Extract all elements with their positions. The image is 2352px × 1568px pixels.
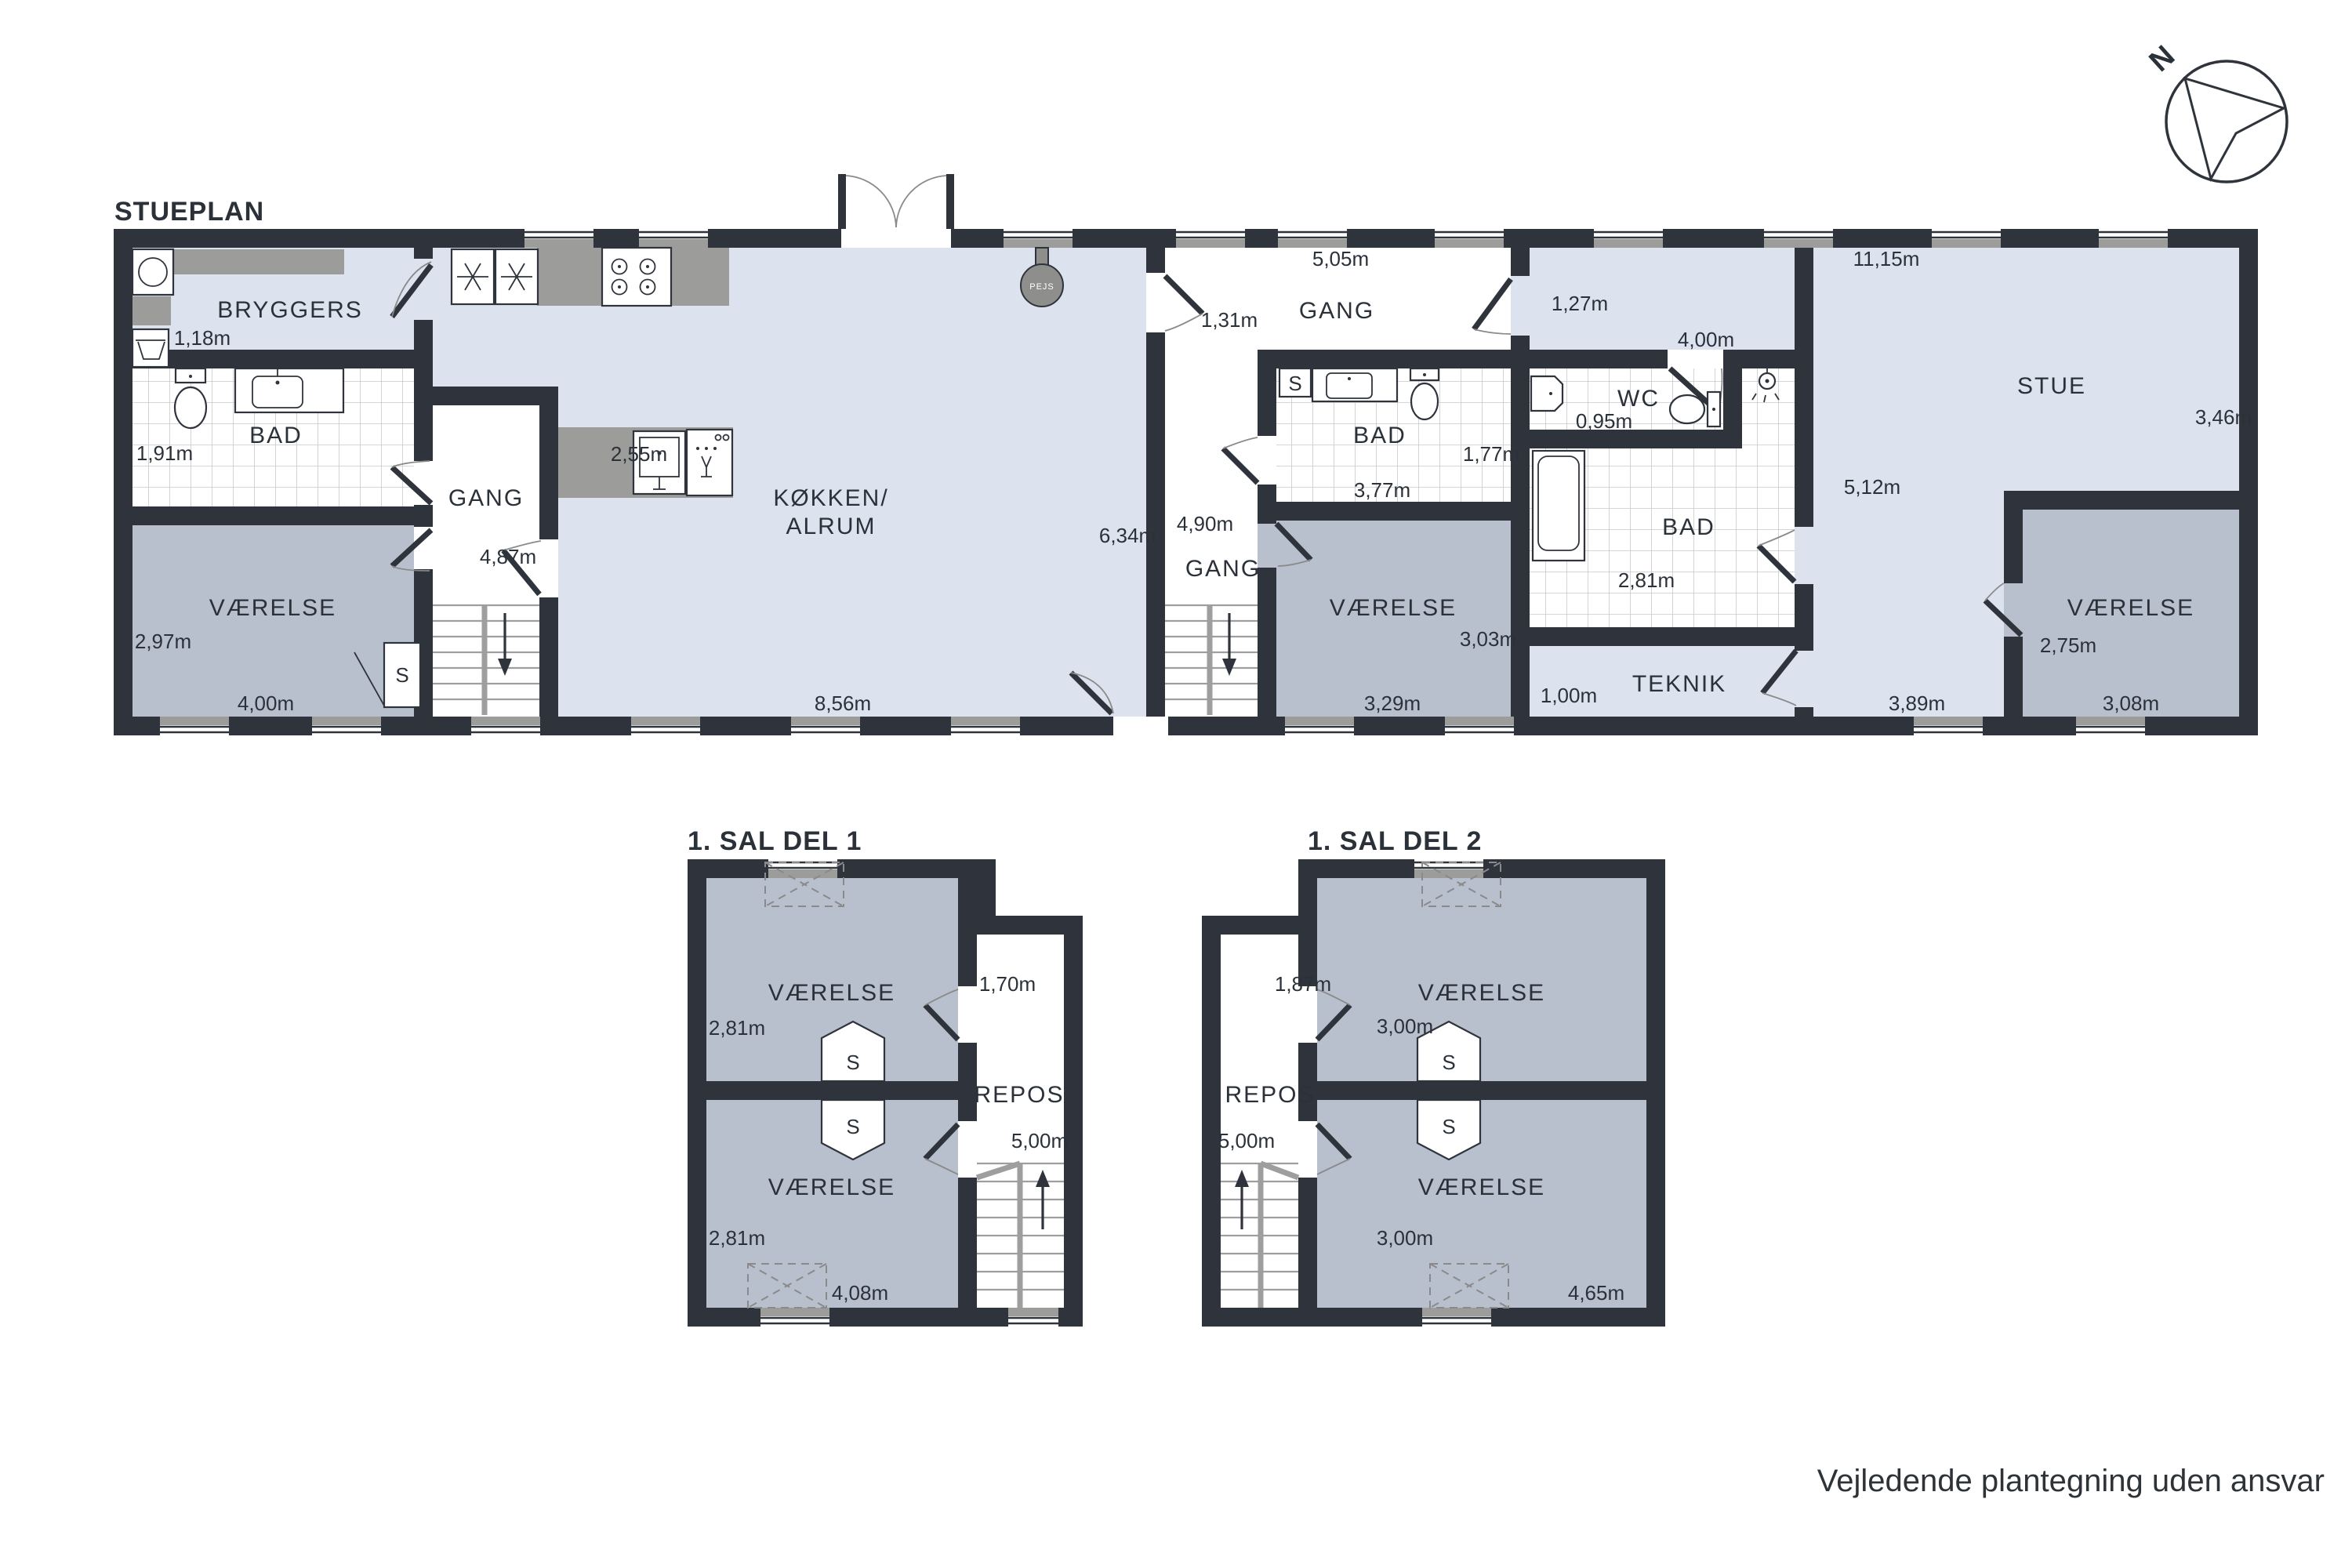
room-label-bad-mid: BAD [1353, 423, 1406, 448]
disclaimer-text: Vejledende plantegning uden ansvar [1817, 1464, 2325, 1498]
closet-label: S [846, 1115, 859, 1138]
dim-stue-bottom: 3,89m [1889, 691, 1945, 715]
dim-wc-w: 4,00m [1678, 328, 1734, 351]
room-vaerelse-left-floor [132, 525, 414, 717]
closet-label: S [846, 1051, 859, 1074]
sal2-vaerelse-bottom-floor [1317, 1100, 1646, 1308]
dim-bryggers: 1,18m [174, 326, 230, 350]
dim-entry-pass: 1,31m [1201, 308, 1258, 332]
sal2-title: 1. SAL DEL 2 [1308, 826, 1482, 856]
bathtub-icon [1533, 451, 1584, 561]
dim-gang-mid: 4,90m [1177, 512, 1233, 535]
dim-room-top-h: 3,00m [1377, 1014, 1433, 1038]
wall-vaerelse-right-top [2004, 491, 2258, 510]
dim-pass-right: 1,27m [1552, 292, 1608, 315]
dim-koekken-h: 6,34m [1099, 524, 1156, 547]
compass-north-label: N [2143, 39, 2182, 78]
dim-repos-w: 1,70m [979, 972, 1036, 996]
closet-label: S [1442, 1051, 1455, 1074]
room-label-gang-mid: GANG [1185, 556, 1261, 582]
plan-sal1: 1. SAL DEL 1 [688, 826, 1083, 1327]
closet-label: S [395, 663, 408, 687]
dim-gang-left: 4,87m [480, 545, 536, 568]
dim-width: 4,65m [1568, 1281, 1624, 1305]
dim-wc-h: 0,95m [1576, 409, 1632, 433]
dim-bad-mid-h: 1,77m [1463, 442, 1519, 466]
dim-vaerelse-left-w: 4,00m [238, 691, 294, 715]
dim-repos-w: 1,87m [1275, 972, 1331, 996]
dim-repos-h: 5,00m [1011, 1129, 1068, 1152]
dim-room-top-h: 2,81m [709, 1016, 765, 1040]
vanity-sink-icon [235, 368, 343, 412]
dim-room-bottom-h: 3,00m [1377, 1226, 1433, 1250]
room-label-vaerelse-mid: VÆRELSE [1330, 595, 1457, 621]
room-label-wc: WC [1617, 386, 1660, 412]
room-label-vaerelse: VÆRELSE [1418, 980, 1545, 1006]
floorplan-page: STUEPLAN [0, 0, 2352, 1568]
dim-koekken-w: 8,56m [815, 691, 871, 715]
dim-entry-w: 5,05m [1312, 247, 1369, 270]
room-label-vaerelse: VÆRELSE [768, 980, 895, 1006]
room-label-koekken1: KØKKEN/ [773, 485, 888, 511]
floorplan-drawing: STUEPLAN [0, 0, 2352, 1568]
room-label-teknik: TEKNIK [1632, 671, 1726, 697]
dim-vaerelse-mid-w: 3,29m [1364, 691, 1421, 715]
room-label-vaerelse: VÆRELSE [768, 1174, 895, 1200]
room-label-vaerelse-right: VÆRELSE [2067, 595, 2194, 621]
plan-stueplan: STUEPLAN [114, 174, 2258, 735]
sal1-title: 1. SAL DEL 1 [688, 826, 862, 856]
dim-repos-h: 5,00m [1218, 1129, 1275, 1152]
room-label-bad-left: BAD [249, 423, 303, 448]
room-label-vaerelse: VÆRELSE [1418, 1174, 1545, 1200]
dim-bad-left-h: 1,91m [136, 441, 193, 465]
room-label-stue: STUE [2017, 373, 2086, 399]
dim-bad-mid-w: 3,77m [1354, 478, 1410, 502]
entrance-double-door [838, 174, 954, 248]
repos-window [1008, 1308, 1058, 1327]
dim-bad-right-h: 5,12m [1844, 475, 1900, 499]
dim-vaerelse-mid-h: 3,03m [1460, 627, 1516, 651]
stove-icon [602, 248, 671, 306]
compass: N [2143, 39, 2287, 182]
plan-sal2: 1. SAL DEL 2 [1202, 826, 1665, 1327]
room-label-bryggers: BRYGGERS [217, 297, 363, 323]
dim-bad-right-w: 2,81m [1618, 568, 1675, 592]
dim-vaerelse-right-w: 3,08m [2103, 691, 2159, 715]
dim-room-bottom-h: 2,81m [709, 1226, 765, 1250]
dim-stue-w: 11,15m [1853, 247, 1920, 270]
room-label-gang-left: GANG [448, 485, 524, 511]
dim-width: 4,08m [832, 1281, 888, 1305]
room-label-repos: REPOS [974, 1082, 1064, 1108]
dim-vaerelse-right-h: 2,75m [2040, 633, 2096, 657]
room-label-repos: REPOS [1225, 1082, 1315, 1108]
stueplan-title: STUEPLAN [114, 197, 264, 227]
room-label-vaerelse-left: VÆRELSE [209, 595, 336, 621]
closet-label: S [1288, 372, 1301, 395]
dim-teknik-h: 1,00m [1541, 684, 1597, 707]
corner-sink-icon [1531, 376, 1563, 411]
dim-counter: 2,55m [611, 442, 667, 466]
pejs-label: PEJS [1029, 282, 1054, 292]
room-label-koekken2: ALRUM [786, 514, 876, 539]
dim-vaerelse-left-h: 2,97m [135, 630, 191, 653]
dim-stue-h: 3,46m [2195, 405, 2252, 429]
room-label-gang-entry: GANG [1299, 298, 1374, 324]
room-label-bad-right: BAD [1662, 514, 1715, 540]
closet-label: S [1442, 1115, 1455, 1138]
